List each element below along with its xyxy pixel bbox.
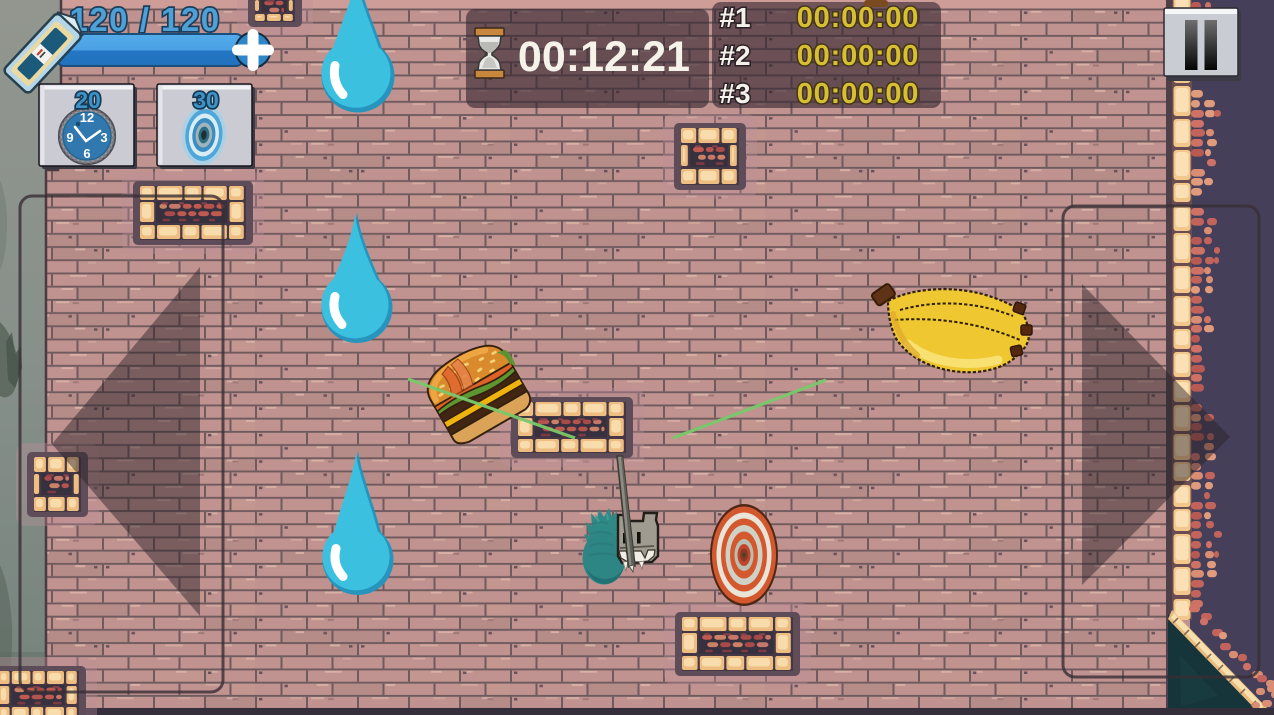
svg-text:00:00:00: 00:00:00 [797,78,920,110]
svg-text:#2: #2 [719,40,750,71]
svg-text:20: 20 [75,87,101,113]
svg-text:30: 30 [193,87,219,113]
svg-text:00:00:00: 00:00:00 [797,2,920,34]
svg-text:120 / 120: 120 / 120 [69,1,220,38]
svg-text:00:00:00: 00:00:00 [797,40,920,72]
svg-text:00:12:21: 00:12:21 [518,33,690,81]
svg-text:#1: #1 [719,2,750,33]
svg-text:3: 3 [100,130,107,145]
svg-text:#3: #3 [719,78,750,109]
svg-text:6: 6 [83,146,90,161]
svg-text:9: 9 [66,130,73,145]
